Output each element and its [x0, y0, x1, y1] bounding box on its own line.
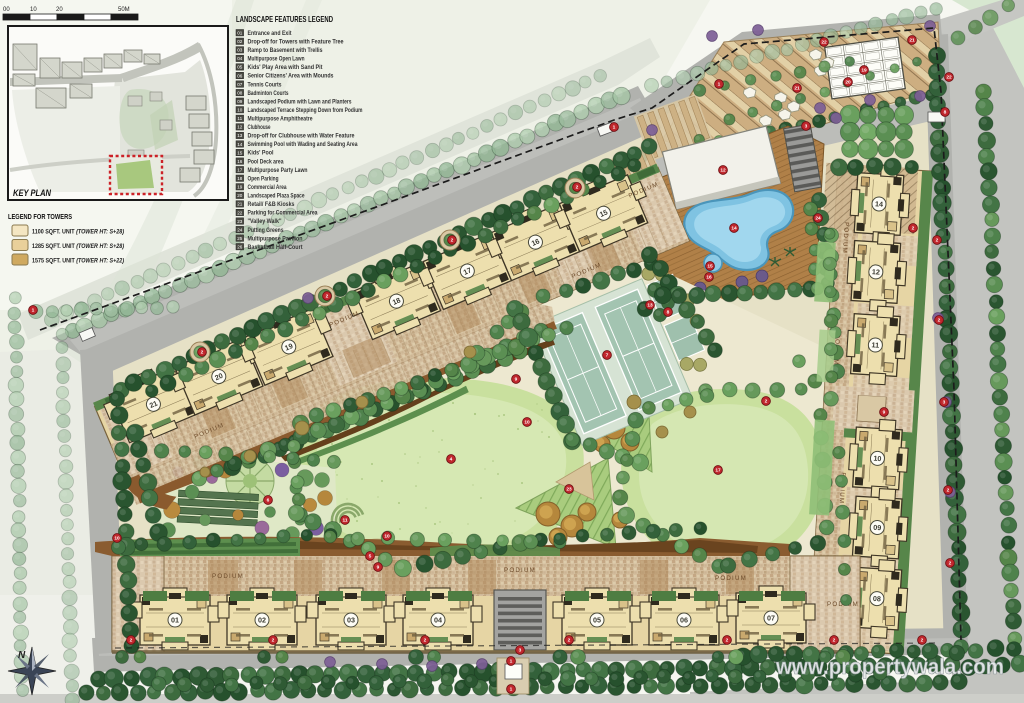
- svg-text:2: 2: [938, 318, 941, 324]
- svg-text:11: 11: [342, 518, 347, 524]
- svg-text:05: 05: [593, 616, 601, 625]
- svg-text:2: 2: [201, 350, 204, 356]
- svg-text:N: N: [18, 650, 26, 661]
- svg-text:09: 09: [237, 99, 243, 104]
- svg-text:26: 26: [237, 245, 243, 250]
- svg-text:19: 19: [237, 185, 243, 190]
- svg-text:17: 17: [237, 167, 243, 172]
- svg-text:1: 1: [613, 125, 616, 131]
- svg-text:2: 2: [130, 638, 133, 644]
- svg-text:07: 07: [767, 614, 775, 623]
- svg-text:20: 20: [237, 193, 243, 198]
- svg-text:05: 05: [237, 65, 243, 70]
- svg-text:5: 5: [369, 554, 372, 560]
- svg-text:15: 15: [237, 150, 243, 155]
- svg-text:18: 18: [237, 176, 243, 181]
- svg-text:KEY PLAN: KEY PLAN: [13, 188, 52, 199]
- svg-text:9: 9: [883, 410, 886, 416]
- svg-text:14: 14: [731, 226, 737, 232]
- svg-text:23: 23: [566, 487, 572, 493]
- svg-text:Tennis Courts: Tennis Courts: [248, 81, 282, 88]
- svg-text:12: 12: [720, 168, 726, 174]
- svg-text:12: 12: [872, 267, 881, 276]
- svg-text:Retail/ F&B Kiosks: Retail/ F&B Kiosks: [248, 201, 295, 208]
- svg-text:3: 3: [519, 648, 522, 654]
- svg-text:2: 2: [833, 638, 836, 644]
- svg-text:10: 10: [524, 420, 530, 426]
- svg-text:www.propertywala.com: www.propertywala.com: [775, 654, 1004, 679]
- svg-text:9: 9: [515, 377, 518, 383]
- svg-text:2: 2: [765, 399, 768, 405]
- svg-text:12: 12: [237, 125, 243, 130]
- svg-text:21: 21: [794, 86, 800, 92]
- svg-text:22: 22: [821, 40, 827, 46]
- svg-text:Multipurpose Pavilion: Multipurpose Pavilion: [248, 235, 303, 242]
- svg-text:2: 2: [576, 185, 579, 191]
- svg-text:Badminton Courts: Badminton Courts: [248, 90, 289, 97]
- svg-text:22: 22: [237, 210, 243, 215]
- svg-text:11: 11: [871, 340, 879, 349]
- svg-text:Multipurpose Party Lawn: Multipurpose Party Lawn: [248, 167, 308, 174]
- svg-text:2: 2: [326, 294, 329, 300]
- svg-text:22: 22: [946, 75, 952, 81]
- svg-text:Landscaped Terrace Stepping Do: Landscaped Terrace Stepping Down from Po…: [248, 107, 363, 114]
- svg-text:2: 2: [272, 638, 275, 644]
- svg-text:1: 1: [718, 82, 721, 88]
- svg-text:2: 2: [568, 638, 571, 644]
- svg-text:07: 07: [237, 82, 243, 87]
- svg-text:1: 1: [510, 687, 513, 693]
- svg-text:Landscaped Plaza Space: Landscaped Plaza Space: [248, 193, 305, 200]
- svg-text:Ramp to Basement with Trellis: Ramp to Basement with Trellis: [248, 47, 323, 54]
- svg-text:9: 9: [377, 565, 380, 571]
- svg-text:20: 20: [56, 7, 63, 13]
- svg-text:Entrance and Exit: Entrance and Exit: [248, 30, 292, 37]
- svg-text:19: 19: [861, 68, 867, 74]
- svg-text:14: 14: [875, 199, 884, 208]
- svg-text:08: 08: [873, 594, 882, 603]
- svg-text:PODIUM: PODIUM: [212, 573, 244, 580]
- svg-text:Parking for Commercial Area: Parking for Commercial Area: [248, 210, 318, 217]
- svg-text:8: 8: [667, 310, 670, 316]
- svg-text:Drop-off for Clubhouse with Wa: Drop-off for Clubhouse with Water Featur…: [248, 133, 355, 140]
- svg-text:16: 16: [237, 159, 243, 164]
- svg-text:2: 2: [936, 238, 939, 244]
- svg-text:50M: 50M: [118, 7, 130, 13]
- svg-text:20: 20: [845, 80, 851, 86]
- svg-text:Pool Deck area: Pool Deck area: [248, 158, 284, 165]
- svg-text:Senior Citizens' Area with Mou: Senior Citizens' Area with Mounds: [248, 73, 334, 80]
- svg-text:Clubhouse: Clubhouse: [248, 124, 271, 131]
- svg-text:24: 24: [815, 216, 821, 222]
- svg-text:11: 11: [237, 116, 242, 121]
- svg-text:23: 23: [237, 219, 243, 224]
- svg-text:1100 SQFT. UNIT (TOWER HT: S+2: 1100 SQFT. UNIT (TOWER HT: S+28): [32, 229, 124, 236]
- svg-text:21: 21: [237, 202, 243, 207]
- svg-text:13: 13: [237, 133, 243, 138]
- svg-text:16: 16: [706, 275, 712, 281]
- svg-text:Multipurpose Open Lawn: Multipurpose Open Lawn: [248, 56, 305, 63]
- svg-text:2: 2: [947, 488, 950, 494]
- svg-text:Putting Greens: Putting Greens: [248, 227, 284, 234]
- svg-text:10: 10: [30, 7, 37, 13]
- svg-text:13: 13: [647, 303, 653, 309]
- svg-text:4: 4: [450, 457, 453, 463]
- svg-text:1575 SQFT. UNIT (TOWER HT: S+2: 1575 SQFT. UNIT (TOWER HT: S+22): [32, 258, 124, 265]
- svg-text:Landscaped Podium with Lawn an: Landscaped Podium with Lawn and Planters: [248, 98, 352, 105]
- svg-text:06: 06: [680, 616, 688, 625]
- svg-text:25: 25: [237, 236, 243, 241]
- svg-text:04: 04: [237, 56, 243, 61]
- svg-text:03: 03: [347, 616, 355, 625]
- svg-text:Multipurpose Amphitheatre: Multipurpose Amphitheatre: [248, 116, 313, 123]
- svg-text:08: 08: [237, 90, 243, 95]
- svg-text:Kids' Play Area with Sand Pit: Kids' Play Area with Sand Pit: [248, 64, 323, 71]
- svg-text:2: 2: [451, 238, 454, 244]
- svg-text:21: 21: [909, 38, 915, 44]
- svg-text:2: 2: [424, 638, 427, 644]
- svg-text:04: 04: [434, 616, 442, 625]
- svg-text:LEGEND FOR TOWERS: LEGEND FOR TOWERS: [8, 212, 72, 221]
- svg-text:2: 2: [912, 226, 915, 232]
- svg-text:10: 10: [873, 454, 882, 463]
- svg-text:Commercial Area: Commercial Area: [248, 184, 287, 191]
- svg-text:17: 17: [715, 468, 721, 474]
- svg-text:1: 1: [510, 659, 513, 665]
- svg-text:7: 7: [606, 353, 609, 359]
- svg-text:Open Parking: Open Parking: [248, 175, 279, 182]
- svg-text:Swimming Pool with Wading and: Swimming Pool with Wading and Seating Ar…: [248, 141, 358, 148]
- svg-text:02: 02: [237, 39, 243, 44]
- svg-text:01: 01: [171, 616, 179, 625]
- svg-text:LANDSCAPE FEATURES LEGEND: LANDSCAPE FEATURES LEGEND: [236, 14, 333, 24]
- svg-text:06: 06: [237, 73, 243, 78]
- svg-text:"Valley Walk": "Valley Walk": [248, 218, 282, 225]
- svg-text:24: 24: [237, 227, 243, 232]
- svg-text:8: 8: [944, 110, 947, 116]
- svg-text:1: 1: [32, 308, 35, 314]
- svg-text:2: 2: [921, 638, 924, 644]
- svg-text:10: 10: [384, 534, 390, 540]
- svg-text:6: 6: [267, 498, 270, 504]
- svg-text:14: 14: [237, 142, 243, 147]
- svg-text:3: 3: [805, 124, 808, 130]
- svg-text:1285 SQFT. UNIT (TOWER HT: S+2: 1285 SQFT. UNIT (TOWER HT: S+28): [32, 243, 124, 250]
- svg-text:10: 10: [114, 536, 120, 542]
- svg-text:2: 2: [949, 561, 952, 567]
- svg-text:3: 3: [943, 400, 946, 406]
- svg-text:03: 03: [237, 48, 243, 53]
- svg-text:10: 10: [237, 108, 243, 113]
- svg-text:PODIUM: PODIUM: [504, 567, 536, 574]
- svg-text:Basketball Half-Court: Basketball Half-Court: [248, 244, 303, 251]
- svg-text:15: 15: [707, 264, 713, 270]
- svg-text:02: 02: [258, 616, 266, 625]
- svg-text:Kids' Pool: Kids' Pool: [248, 150, 274, 157]
- svg-text:00: 00: [3, 7, 10, 13]
- svg-text:PODIUM: PODIUM: [715, 575, 747, 582]
- svg-text:2: 2: [726, 638, 729, 644]
- svg-text:09: 09: [873, 523, 882, 532]
- svg-text:Drop-off for Towers with Featu: Drop-off for Towers with Feature Tree: [248, 38, 344, 45]
- svg-text:01: 01: [237, 31, 243, 36]
